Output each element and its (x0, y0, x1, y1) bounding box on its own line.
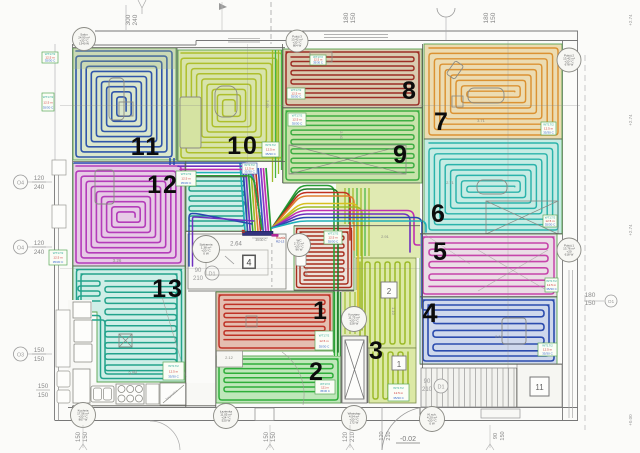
svg-text:WT17/2: WT17/2 (181, 172, 192, 176)
svg-text:1340 W: 1340 W (79, 41, 89, 45)
svg-text:3.71: 3.71 (477, 118, 486, 123)
svg-text:180: 180 (585, 292, 596, 299)
svg-text:120: 120 (34, 240, 45, 247)
svg-text:678 W: 678 W (565, 63, 574, 67)
svg-text:172 W: 172 W (350, 421, 359, 425)
svg-text:35/30 C: 35/30 C (265, 152, 276, 156)
svg-text:35/30 C: 35/30 C (545, 222, 556, 226)
svg-text:4: 4 (246, 258, 251, 268)
svg-text:11: 11 (131, 133, 161, 161)
svg-text:35/30 C: 35/30 C (328, 239, 339, 243)
svg-text:150: 150 (38, 383, 49, 390)
svg-text:520 W: 520 W (222, 419, 231, 423)
svg-text:2.80: 2.80 (339, 131, 344, 140)
svg-text:0.61: 0.61 (495, 334, 504, 339)
svg-text:2.12: 2.12 (225, 355, 234, 360)
svg-text:2: 2 (387, 287, 392, 296)
svg-text:120: 120 (343, 431, 349, 442)
svg-text:240: 240 (34, 249, 45, 256)
svg-text:150: 150 (271, 431, 277, 442)
svg-text:2.80: 2.80 (265, 100, 270, 109)
svg-text:35/30 C: 35/30 C (181, 181, 192, 185)
svg-text:12: 12 (147, 171, 179, 199)
svg-text:WT17/2: WT17/2 (168, 364, 179, 368)
svg-text:WT17/2: WT17/2 (265, 143, 276, 147)
svg-text:12.5 m: 12.5 m (394, 391, 404, 395)
svg-text:10: 10 (227, 132, 259, 160)
svg-text:O3: O3 (17, 353, 24, 359)
svg-text:90: 90 (424, 379, 431, 385)
svg-text:12.5 m: 12.5 m (319, 339, 329, 343)
svg-text:12.5 m: 12.5 m (53, 256, 63, 260)
svg-text:150: 150 (500, 431, 506, 440)
svg-text:0 W: 0 W (203, 252, 209, 256)
svg-text:1.10: 1.10 (391, 307, 396, 316)
svg-text:WT17/2: WT17/2 (43, 95, 54, 99)
svg-text:96 W: 96 W (295, 248, 302, 252)
svg-text:12.5 m: 12.5 m (181, 177, 191, 181)
svg-text:150: 150 (38, 392, 49, 399)
svg-text:-0.02: -0.02 (400, 436, 416, 443)
svg-text:35/30 C: 35/30 C (319, 345, 330, 349)
svg-text:150: 150 (264, 431, 270, 442)
svg-text:1: 1 (313, 297, 329, 325)
svg-text:12.5 m: 12.5 m (169, 369, 179, 373)
svg-text:150: 150 (490, 12, 497, 23)
svg-text:180: 180 (343, 12, 350, 23)
svg-text:WT17/2: WT17/2 (53, 251, 64, 255)
svg-text:90: 90 (493, 433, 499, 439)
svg-text:O4: O4 (17, 181, 24, 187)
svg-text:35/30 C: 35/30 C (313, 61, 323, 65)
svg-text:150: 150 (76, 431, 82, 442)
svg-text:240: 240 (132, 14, 139, 25)
svg-text:WT17/2: WT17/2 (319, 333, 330, 337)
svg-text:9: 9 (393, 141, 409, 169)
svg-text:1: 1 (397, 360, 402, 369)
svg-text:WT17/2: WT17/2 (393, 386, 404, 390)
svg-text:RZ-13: RZ-13 (276, 240, 285, 244)
svg-text:35/30 C: 35/30 C (53, 260, 64, 264)
svg-text:+2.74: +2.74 (628, 224, 633, 236)
svg-text:150: 150 (83, 431, 89, 442)
svg-text:35/30 C: 35/30 C (292, 121, 303, 125)
svg-text:150: 150 (350, 12, 357, 23)
svg-text:90: 90 (195, 268, 202, 274)
svg-text:D1: D1 (208, 272, 215, 278)
svg-text:7: 7 (434, 108, 450, 136)
svg-text:150: 150 (34, 356, 45, 363)
svg-text:210: 210 (350, 431, 356, 442)
svg-text:2.91: 2.91 (381, 234, 390, 239)
svg-text:35/30 C: 35/30 C (543, 130, 554, 134)
svg-text:35/30 C: 35/30 C (43, 106, 54, 110)
svg-text:528 W: 528 W (350, 322, 359, 326)
svg-text:35/30 C: 35/30 C (393, 396, 404, 400)
svg-text:12.5 m: 12.5 m (266, 148, 276, 152)
svg-text:35/30 C: 35/30 C (168, 375, 179, 379)
svg-text:35/30 C: 35/30 C (546, 287, 557, 291)
svg-text:807 W: 807 W (79, 418, 88, 422)
svg-text:35/30 C: 35/30 C (45, 59, 56, 63)
svg-text:2.71: 2.71 (446, 180, 455, 185)
svg-text:210: 210 (422, 387, 433, 393)
svg-text:5: 5 (433, 238, 449, 266)
svg-text:12.5 m: 12.5 m (43, 100, 53, 104)
svg-text:O1: O1 (608, 299, 615, 305)
svg-text:35/30 C: 35/30 C (542, 351, 553, 355)
svg-text:+2.74: +2.74 (628, 14, 633, 26)
svg-text:150: 150 (34, 347, 45, 354)
svg-text:O4: O4 (17, 246, 24, 252)
svg-text:240: 240 (34, 184, 45, 191)
svg-text:11: 11 (535, 383, 544, 392)
svg-text:2: 2 (309, 358, 325, 386)
svg-text:618 W: 618 W (565, 253, 574, 257)
svg-text:2.64: 2.64 (230, 242, 242, 248)
svg-text:35/30 C: 35/30 C (320, 389, 330, 393)
svg-text:6: 6 (431, 200, 447, 228)
svg-text:35/30 C: 35/30 C (255, 238, 267, 242)
svg-text:8: 8 (402, 77, 418, 105)
svg-text:+2.74: +2.74 (628, 114, 633, 126)
svg-text:2.01: 2.01 (304, 268, 309, 277)
svg-text:3.26: 3.26 (113, 258, 122, 263)
svg-text:+0.00: +0.00 (628, 414, 633, 426)
svg-text:804 W: 804 W (293, 43, 302, 47)
svg-text:180: 180 (483, 12, 490, 23)
svg-text:35/30 C: 35/30 C (291, 95, 302, 99)
svg-text:35/30 C: 35/30 C (244, 170, 255, 174)
svg-text:D1: D1 (437, 385, 444, 391)
svg-text:0 W: 0 W (429, 422, 435, 426)
svg-text:210: 210 (193, 276, 204, 282)
svg-text:4: 4 (422, 298, 439, 328)
svg-text:3: 3 (369, 337, 385, 365)
svg-text:13: 13 (152, 275, 184, 303)
svg-text:120: 120 (34, 175, 45, 182)
